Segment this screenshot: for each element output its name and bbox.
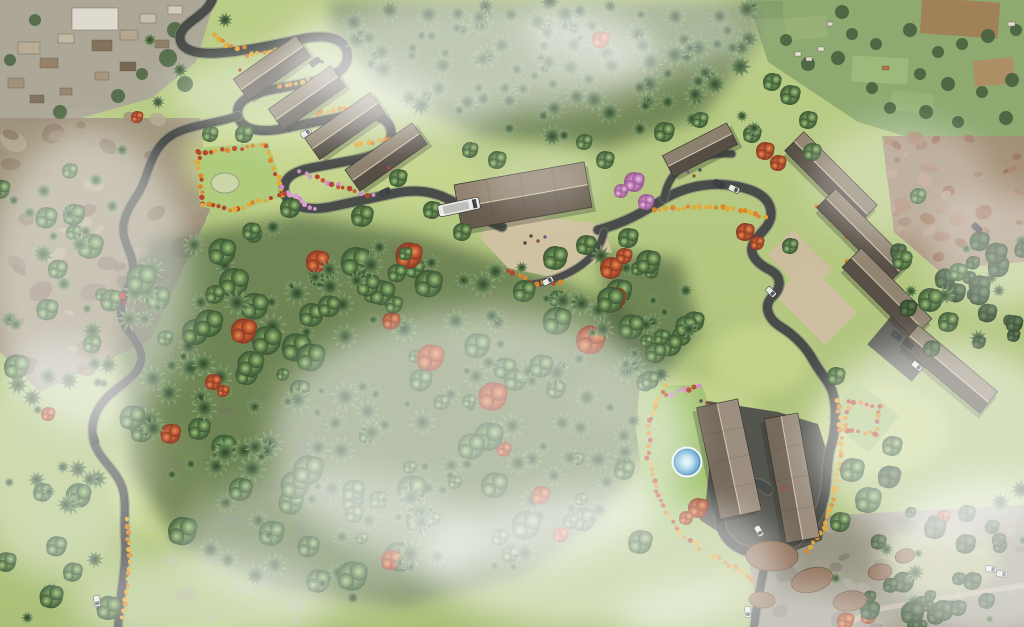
site-plan-canvas [0, 0, 1024, 627]
atmospheric-veil [0, 0, 1024, 627]
aerial-site-plan-rendering [0, 0, 1024, 627]
global-haze [0, 0, 1024, 627]
